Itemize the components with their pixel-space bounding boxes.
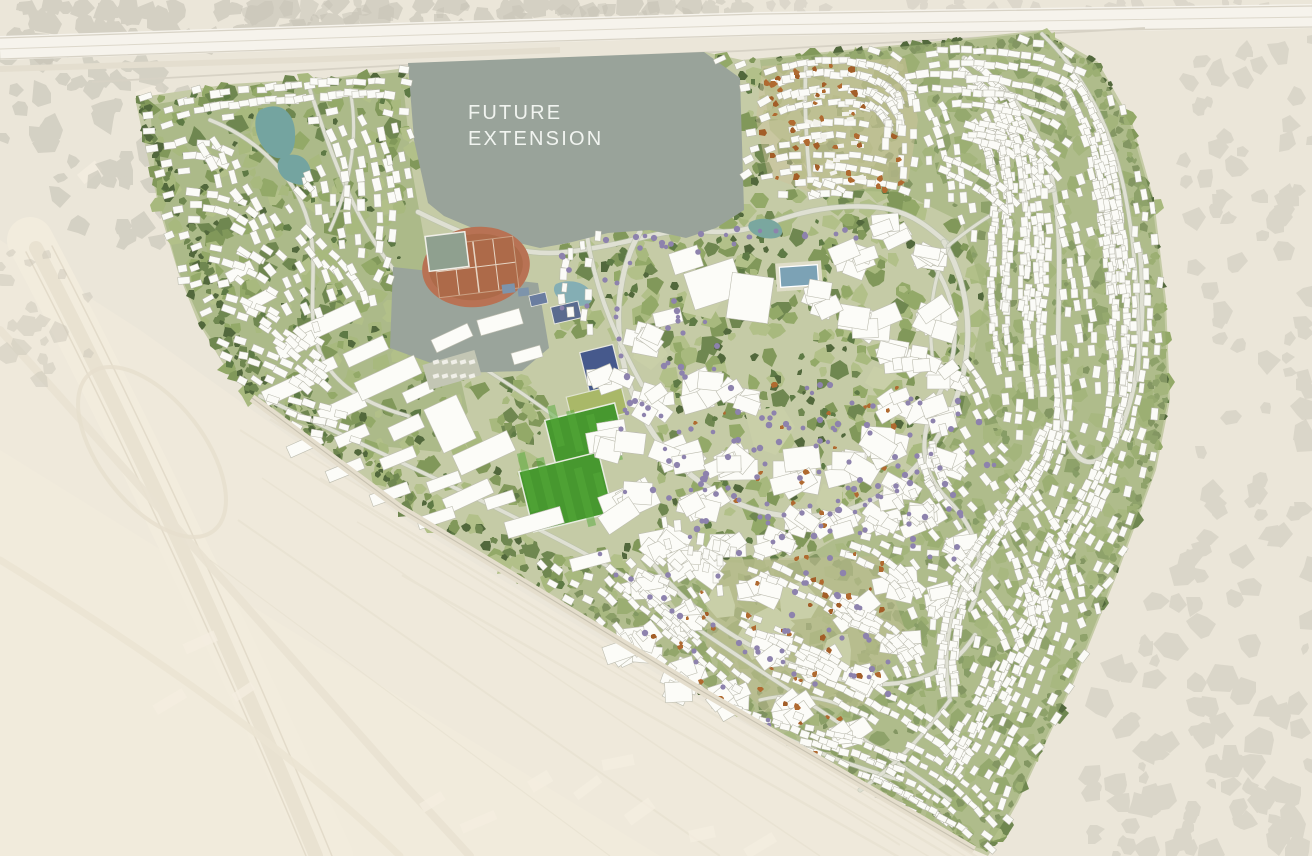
svg-text:FUTURE: FUTURE (468, 102, 562, 124)
svg-text:EXTENSION: EXTENSION (468, 128, 603, 150)
